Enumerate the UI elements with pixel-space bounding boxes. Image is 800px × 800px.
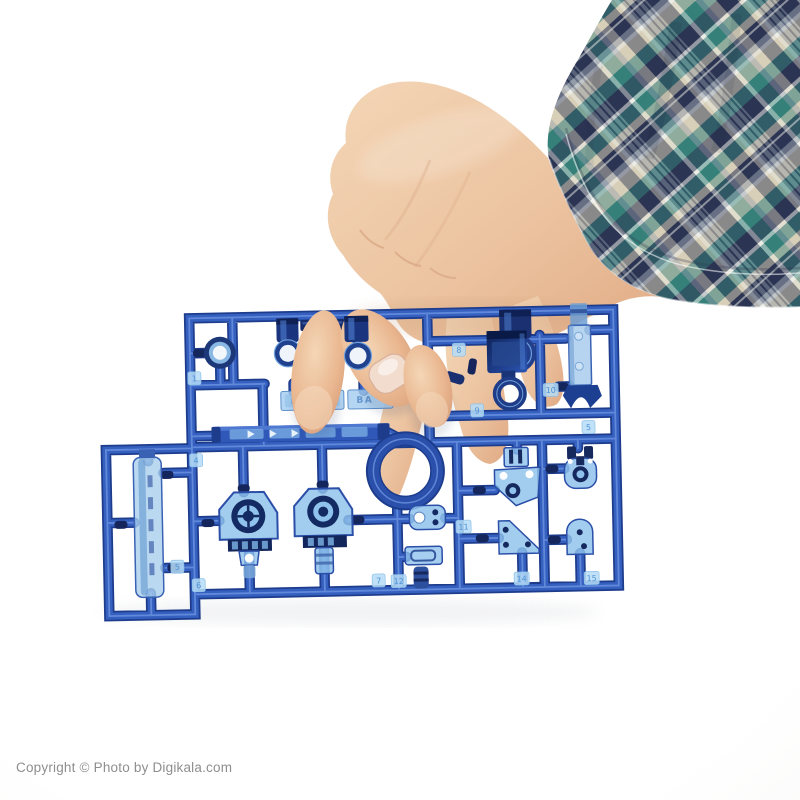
part-number-tag: 5 [171, 560, 184, 573]
svg-text:8: 8 [456, 346, 461, 355]
part-number-tag: 7 [372, 574, 385, 587]
svg-text:4: 4 [193, 456, 198, 465]
svg-text:14: 14 [516, 574, 526, 583]
part-number-tag: 15 [584, 571, 599, 584]
part-number-tag: 8 [452, 343, 465, 356]
part-triangle-plate [498, 520, 539, 554]
svg-text:9: 9 [475, 406, 480, 415]
part-number-tag: 6 [192, 579, 205, 592]
svg-text:1: 1 [192, 374, 197, 383]
part-number-tag: 14 [514, 572, 529, 585]
part-slot-box [405, 546, 443, 589]
part-number-tag: 11 [456, 520, 471, 533]
svg-text:5: 5 [175, 563, 180, 572]
part-number-tag: 1 [188, 372, 201, 385]
copyright-watermark: Copyright © Photo by Digikala.com [16, 760, 232, 775]
part-number-tag: 4 [189, 454, 202, 467]
svg-text:6: 6 [196, 581, 201, 590]
part-number-tag: 9 [471, 404, 484, 417]
svg-text:12: 12 [394, 577, 404, 586]
part-number-tag: 12 [391, 574, 406, 587]
svg-text:5: 5 [586, 423, 591, 432]
svg-text:11: 11 [458, 523, 468, 532]
part-long-tube [133, 449, 164, 598]
product-photo: KENKO BA [0, 0, 800, 800]
part-number-tag: 10 [543, 383, 558, 396]
part-number-tag: 5 [582, 420, 595, 433]
part-arch-plate [566, 519, 593, 555]
svg-text:10: 10 [546, 386, 556, 395]
svg-text:15: 15 [587, 574, 597, 583]
svg-text:7: 7 [376, 576, 381, 585]
part-hub-housing-right [294, 488, 354, 574]
part-eyelet-tab [409, 505, 445, 530]
part-hub-housing-left [219, 492, 279, 579]
photo-canvas: KENKO BA [0, 0, 800, 800]
